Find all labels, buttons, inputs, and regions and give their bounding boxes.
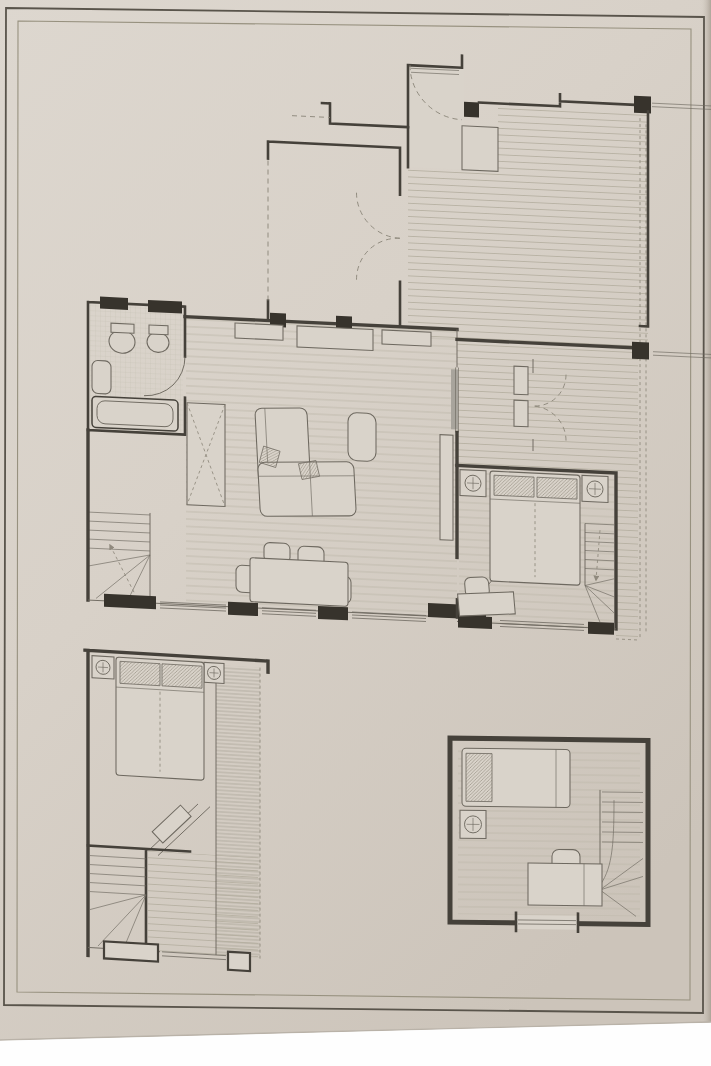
nightstand-icon xyxy=(92,656,114,679)
pillow-icon xyxy=(120,661,160,685)
planter xyxy=(514,400,528,427)
single-bed xyxy=(462,748,570,807)
wall-cabinet xyxy=(235,323,283,340)
paper-right-edge xyxy=(700,0,711,1024)
desk xyxy=(528,863,602,906)
entry-closet xyxy=(462,126,498,172)
pillow-icon xyxy=(494,475,534,497)
cushion-icon xyxy=(298,461,319,480)
toilet-icon xyxy=(109,323,135,354)
sliding-panel xyxy=(451,369,458,429)
window-pier xyxy=(228,602,258,616)
lower-terrace-hatch xyxy=(148,851,258,958)
nightstand-icon xyxy=(582,475,608,502)
window-pier xyxy=(318,606,348,620)
coffee-table xyxy=(348,412,376,461)
planter xyxy=(514,366,528,395)
nightstand-icon xyxy=(460,470,486,497)
floor-plan-photo xyxy=(0,0,711,1066)
column-icon xyxy=(632,342,649,360)
bidet-icon xyxy=(147,325,169,353)
pillow-icon xyxy=(537,477,577,499)
floor-plan-drawing xyxy=(0,0,711,1066)
pillow-icon xyxy=(466,753,492,801)
window-pier xyxy=(228,952,250,971)
pillow-icon xyxy=(162,664,202,688)
nightstand-icon xyxy=(460,810,486,838)
tv-sideboard xyxy=(440,435,453,541)
x-wardrobe xyxy=(187,403,225,507)
dining-table xyxy=(250,558,348,607)
wall-cabinet xyxy=(297,326,373,351)
wall-cabinet xyxy=(382,330,431,346)
column-icon xyxy=(464,102,479,118)
window-pier xyxy=(104,941,158,961)
nightstand-icon xyxy=(204,662,224,683)
bathtub-icon xyxy=(92,396,178,431)
double-bed xyxy=(490,471,580,585)
window-pier xyxy=(104,594,156,609)
desk xyxy=(458,592,516,616)
window-pier xyxy=(588,622,614,635)
window-pier xyxy=(458,615,492,629)
lower-right-unit-plan xyxy=(450,738,648,932)
washbasin-icon xyxy=(92,360,111,394)
double-bed xyxy=(116,657,204,780)
